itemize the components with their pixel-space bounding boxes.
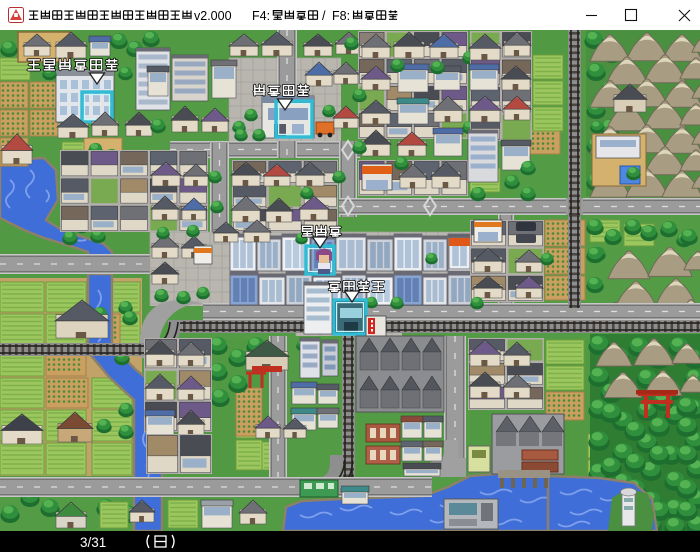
svg-text:F8:: F8: xyxy=(332,9,350,23)
svg-text:3/31: 3/31 xyxy=(80,535,106,550)
svg-text:F4:: F4: xyxy=(252,9,270,23)
svg-text:/: / xyxy=(322,9,326,23)
svg-text:v2.000: v2.000 xyxy=(194,9,232,23)
